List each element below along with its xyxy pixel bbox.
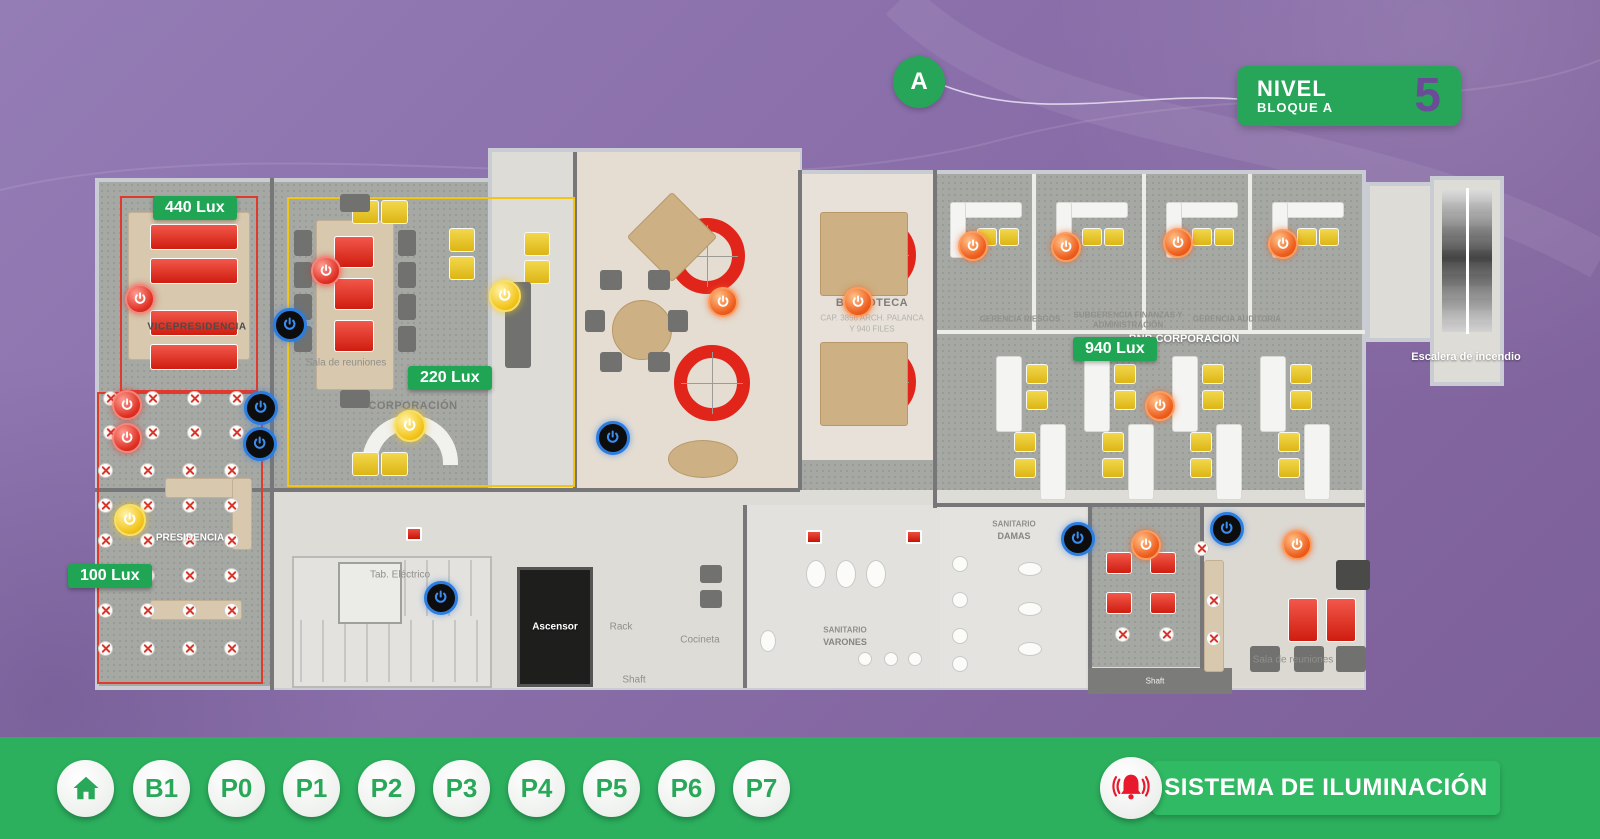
furniture [1014,432,1036,452]
furniture [1304,424,1330,500]
furniture [398,294,416,320]
furniture [1250,646,1280,672]
ceiling-light [1194,541,1209,556]
furniture [1278,432,1300,452]
furniture [294,230,312,256]
floor-button-p1[interactable]: P1 [283,760,340,817]
furniture [668,440,738,478]
ceiling-light [182,498,197,513]
power-icon [251,435,268,452]
furniture [381,200,408,224]
power-icon [132,291,148,307]
power-icon [119,397,135,413]
light-switch-orange[interactable] [1268,229,1298,259]
furniture [996,356,1022,432]
power-icon [965,238,981,254]
light-switch-blue[interactable] [244,391,278,425]
ceiling-light [224,463,239,478]
power-icon [496,287,513,304]
light-switch-orange[interactable] [843,287,873,317]
furniture [1290,390,1312,410]
light-switch-red[interactable] [112,423,142,453]
power-icon [1170,235,1186,251]
furniture [760,630,776,652]
floor-button-label: P0 [221,773,253,804]
furniture [1114,390,1136,410]
floor-button-p3[interactable]: P3 [433,760,490,817]
power-icon [1275,236,1291,252]
furniture [820,342,908,426]
system-group: SISTEMA DE ILUMINACIÓN [1100,757,1500,819]
ceiling-light [140,533,155,548]
floor-button-p0[interactable]: P0 [208,760,265,817]
ceiling-light [98,603,113,618]
furniture [1278,458,1300,478]
light-switch-orange[interactable] [1051,232,1081,262]
furniture [1082,228,1102,246]
light-switch-red[interactable] [112,390,142,420]
furniture [952,592,968,608]
power-icon [1218,520,1235,537]
furniture [1150,592,1176,614]
ceiling-light [98,498,113,513]
furniture [1336,560,1370,590]
power-icon [401,417,418,434]
furniture [1084,356,1110,432]
furniture [884,652,898,666]
furniture [398,326,416,352]
furniture [820,212,908,296]
furniture [648,270,670,290]
ceiling-light [182,463,197,478]
ceiling-light [187,425,202,440]
power-icon [1069,530,1086,547]
ceiling-light [187,391,202,406]
furniture [1018,562,1042,576]
floor-button-label: P7 [746,773,778,804]
app-canvas: A NIVEL BLOQUE A 5 [0,0,1600,839]
light-switch-orange[interactable] [708,287,738,317]
furniture [150,224,238,250]
furniture [952,628,968,644]
furniture [858,652,872,666]
furniture [1290,364,1312,384]
ceiling-light [229,425,244,440]
power-icon [850,294,866,310]
power-icon [1138,537,1154,553]
floor-button-p6[interactable]: P6 [658,760,715,817]
light-switch-orange[interactable] [958,231,988,261]
power-icon [281,316,298,333]
furniture [294,262,312,288]
ceiling-light [98,533,113,548]
ceiling-light [229,391,244,406]
furniture [1114,364,1136,384]
system-title: SISTEMA DE ILUMINACIÓN [1152,761,1500,815]
floor-button-label: P5 [596,773,628,804]
furniture [1190,432,1212,452]
furniture [836,560,856,588]
floor-button-label: P3 [446,773,478,804]
furniture [1026,364,1048,384]
electrical-board [338,562,402,624]
floor-button-p2[interactable]: P2 [358,760,415,817]
ceiling-light [182,568,197,583]
furniture [340,194,370,212]
floor-button-p7[interactable]: P7 [733,760,790,817]
furniture [381,452,408,476]
furniture [1326,598,1356,642]
ceiling-light [98,641,113,656]
furniture [1026,390,1048,410]
power-icon [432,589,449,606]
light-switch-red[interactable] [125,284,155,314]
furniture [1319,228,1339,246]
power-icon [252,399,269,416]
ceiling-light [224,568,239,583]
home-icon [71,773,101,803]
light-switch-yellow[interactable] [114,504,146,536]
alarm-bell-button[interactable] [1100,757,1162,819]
furniture [352,452,379,476]
furniture [1204,560,1224,672]
lux-label-220: 220 Lux [408,366,492,390]
ceiling-light [1115,627,1130,642]
furniture [1040,424,1066,500]
ceiling-light [140,641,155,656]
furniture [952,556,968,572]
furniture [524,232,550,256]
furniture [1102,458,1124,478]
furniture [908,652,922,666]
furniture [1018,642,1042,656]
plan-bridge [1366,182,1434,342]
ceiling-light [1159,627,1174,642]
furniture [150,310,238,336]
light-switch-yellow[interactable] [489,280,521,312]
alarm-box [406,527,422,541]
furniture [449,228,475,252]
furniture [1260,356,1286,432]
ceiling-light [140,603,155,618]
bottom-navbar: B1P0P1P2P3P4P5P6P7 SISTEMA DE ILUMINACIÓ… [0,737,1600,839]
floor-button-label: P2 [371,773,403,804]
power-icon [119,430,135,446]
ceiling-light [182,533,197,548]
furniture [1128,424,1154,500]
furniture [150,258,238,284]
furniture [449,256,475,280]
furniture [1190,458,1212,478]
ceiling-light [224,533,239,548]
furniture [612,300,672,360]
furniture [585,310,605,332]
furniture [600,352,622,372]
furniture [1288,598,1318,642]
furniture [1202,390,1224,410]
alarm-box [906,530,922,544]
light-switch-blue[interactable] [1210,512,1244,546]
light-switch-orange[interactable] [1282,530,1312,560]
furniture [1214,228,1234,246]
ceiling-light [145,391,160,406]
furniture [668,310,688,332]
power-icon [604,429,621,446]
light-switch-orange[interactable] [1163,228,1193,258]
power-icon [1058,239,1074,255]
floor-button-p5[interactable]: P5 [583,760,640,817]
furniture [1106,592,1132,614]
light-switch-blue[interactable] [596,421,630,455]
light-switch-orange[interactable] [1145,391,1175,421]
furniture [1297,228,1317,246]
ceiling-light [224,641,239,656]
lux-label-940: 940 Lux [1073,337,1157,361]
round-red-table [674,345,750,421]
ceiling-light [182,641,197,656]
furniture [806,560,826,588]
furniture [600,270,622,290]
alarm-bell-icon [1111,768,1151,808]
floor-buttons: B1P0P1P2P3P4P5P6P7 [133,760,790,817]
furniture [334,320,374,352]
floor-button-b1[interactable]: B1 [133,760,190,817]
furniture [1172,356,1198,432]
light-switch-blue[interactable] [273,308,307,342]
furniture [334,278,374,310]
floor-plan: VICEPRESIDENCIASala de reunionesCORPORAC… [0,0,1600,839]
furniture [398,262,416,288]
alarm-box [806,530,822,544]
furniture [1102,432,1124,452]
furniture [952,656,968,672]
floor-button-label: B1 [145,773,178,804]
floor-button-label: P1 [296,773,328,804]
light-switch-red[interactable] [311,256,341,286]
floor-button-label: P6 [671,773,703,804]
ceiling-light [98,463,113,478]
floor-button-label: P4 [521,773,553,804]
furniture [1192,228,1212,246]
furniture [524,260,550,284]
light-switch-blue[interactable] [424,581,458,615]
furniture [150,344,238,370]
power-icon [121,511,138,528]
furniture [866,560,886,588]
furniture [1104,228,1124,246]
furniture [334,236,374,268]
ceiling-light [224,498,239,513]
furniture [1202,364,1224,384]
furniture [340,390,370,408]
furniture [1216,424,1242,500]
furniture [1106,552,1132,574]
furniture [1294,646,1324,672]
light-switch-orange[interactable] [1131,530,1161,560]
light-switch-yellow[interactable] [394,410,426,442]
furniture [700,565,722,583]
lux-label-440: 440 Lux [153,196,237,220]
furniture [999,228,1019,246]
furniture [1014,458,1036,478]
furniture [398,230,416,256]
ceiling-light [1206,631,1221,646]
furniture [648,352,670,372]
lux-label-100: 100 Lux [68,564,152,588]
power-icon [715,294,731,310]
power-icon [1289,537,1305,553]
ceiling-light [1206,593,1221,608]
light-switch-blue[interactable] [243,427,277,461]
home-button[interactable] [57,760,114,817]
ceiling-light [145,425,160,440]
ceiling-light [182,603,197,618]
ceiling-light [224,603,239,618]
power-icon [1152,398,1168,414]
ceiling-light [140,463,155,478]
light-switch-blue[interactable] [1061,522,1095,556]
furniture [700,590,722,608]
furniture [1018,602,1042,616]
elevator [517,567,593,687]
furniture [1336,646,1366,672]
floor-button-p4[interactable]: P4 [508,760,565,817]
power-icon [318,263,334,279]
